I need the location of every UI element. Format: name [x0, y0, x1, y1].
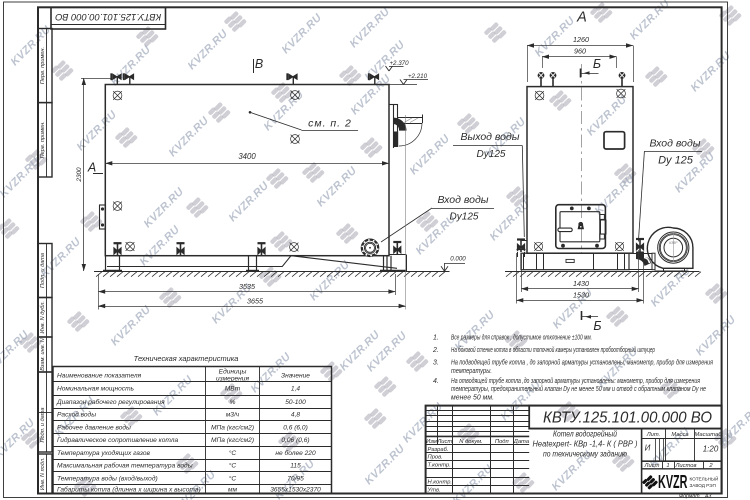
svg-text:МВт: МВт	[225, 386, 241, 393]
svg-text:4.: 4.	[433, 378, 439, 385]
svg-text:Максимальная рабочая температу: Максимальная рабочая температура воды	[57, 462, 193, 470]
svg-text:м3/ч: м3/ч	[226, 412, 240, 419]
svg-text:Лист: Лист	[644, 463, 660, 469]
svg-text:N докум.: N докум.	[459, 439, 482, 445]
svg-text:А: А	[87, 161, 96, 175]
svg-text:Б: Б	[593, 319, 601, 333]
svg-text:МПа (кгс/см2): МПа (кгс/см2)	[211, 437, 254, 444]
svg-text:960: 960	[574, 47, 586, 56]
svg-text:Пров.: Пров.	[428, 455, 443, 461]
svg-text:Утв.: Утв.	[427, 487, 441, 493]
svg-text:Т.контр.: Т.контр.	[428, 463, 451, 469]
svg-text:3.: 3.	[433, 359, 439, 366]
svg-text:1530: 1530	[573, 291, 589, 300]
svg-text:мм: мм	[228, 486, 238, 493]
svg-text:+2.370: +2.370	[389, 60, 409, 67]
svg-text:А3: А3	[704, 493, 711, 499]
svg-text:3400: 3400	[238, 152, 256, 161]
svg-text:Гидравлическое сопротивление к: Гидравлическое сопротивление котла	[57, 436, 178, 444]
svg-text:Все размеры для справок , допу: Все размеры для справок , допустимое отк…	[451, 334, 592, 342]
svg-text:Разраб.: Разраб.	[428, 447, 449, 453]
svg-text:2300: 2300	[76, 167, 83, 183]
svg-text:Лист: Лист	[436, 439, 452, 445]
svg-text:Рабочее давление воды: Рабочее давление воды	[57, 423, 131, 431]
svg-text:Единицы: Единицы	[219, 368, 247, 376]
svg-text:не более 220: не более 220	[275, 449, 316, 457]
svg-text:Вход воды: Вход воды	[650, 138, 701, 150]
svg-text:Выход воды: Выход воды	[460, 131, 519, 143]
svg-text:2.: 2.	[432, 347, 439, 354]
svg-text:Температура уходящих газов: Температура уходящих газов	[57, 449, 150, 457]
svg-text:KVZR: KVZR	[658, 472, 688, 492]
svg-text:Dy 125: Dy 125	[658, 155, 694, 167]
svg-text:50-100: 50-100	[285, 399, 306, 406]
svg-text:КВТУ.125.101.00.000 ВО: КВТУ.125.101.00.000 ВО	[543, 410, 712, 427]
svg-text:Масса: Масса	[671, 432, 689, 438]
svg-text:Формат: Формат	[679, 493, 700, 499]
svg-text:см. п. 2: см. п. 2	[308, 118, 352, 130]
svg-text:Листов: Листов	[674, 463, 696, 469]
svg-text:КЗВР: КЗВР	[669, 241, 678, 245]
svg-text:КОТЕЛЬНЫЙ: КОТЕЛЬНЫЙ	[690, 475, 719, 482]
svg-text:температуры, предохранительный: температуры, предохранительный клапан Dу…	[451, 385, 706, 393]
svg-text:Номинальная мощность: Номинальная мощность	[57, 386, 135, 393]
svg-text:Подп: Подп	[495, 439, 510, 445]
svg-text:Габариты котла (длинна х ширин: Габариты котла (длинна х ширина х высота…	[57, 485, 201, 493]
svg-text:4,8: 4,8	[291, 412, 300, 419]
svg-text:КВТУ.125.101.00.000 ВО: КВТУ.125.101.00.000 ВО	[55, 12, 161, 22]
svg-text:И: И	[645, 444, 651, 453]
svg-text:А: А	[576, 10, 587, 26]
svg-text:3655х1530х2370: 3655х1530х2370	[270, 486, 321, 493]
svg-text:3535: 3535	[239, 282, 256, 291]
svg-text:1430: 1430	[573, 279, 589, 288]
svg-text:1260: 1260	[573, 35, 589, 44]
svg-text:°С: °С	[229, 462, 237, 470]
svg-text:На подводящей трубе котла ,: На подводящей трубе котла , до запорной …	[451, 358, 713, 366]
svg-text:Наименование показателя: Наименование показателя	[57, 373, 142, 380]
svg-text:Котел водогрейный: Котел водогрейный	[553, 430, 618, 439]
svg-text:менее 50 мм.: менее 50 мм.	[451, 394, 494, 401]
svg-text:Heatexpert- КВр -1,4- К ( РВР: Heatexpert- КВр -1,4- К ( РВР )	[533, 440, 638, 449]
svg-text:0,6 (6,0): 0,6 (6,0)	[283, 424, 308, 431]
svg-text:0.000: 0.000	[450, 255, 466, 262]
svg-text:Перв. примен.: Перв. примен.	[40, 121, 46, 158]
svg-text:Дата: Дата	[513, 439, 530, 445]
svg-text:измерения: измерения	[216, 376, 249, 383]
svg-text:1.: 1.	[433, 335, 439, 342]
svg-text:Температура воды (вход/выход): Температура воды (вход/выход)	[57, 474, 158, 482]
svg-text:Изм: Изм	[426, 439, 437, 445]
svg-text:На боковой стенке котла в обла: На боковой стенке котла в области топочн…	[451, 346, 655, 354]
svg-text:70/95: 70/95	[287, 475, 304, 482]
svg-text:Лит.: Лит.	[646, 432, 661, 438]
svg-text:1: 1	[666, 463, 669, 469]
svg-text:Значение: Значение	[281, 373, 310, 380]
svg-text:Взам. инв. N: Взам. инв. N	[40, 337, 46, 371]
svg-text:1,4: 1,4	[291, 386, 300, 393]
svg-text:Перв. примен.: Перв. примен.	[40, 47, 46, 84]
svg-text:Подп. и дата: Подп. и дата	[40, 253, 46, 288]
svg-text:Н.контр.: Н.контр.	[428, 480, 453, 486]
svg-text:Инв. N подл.: Инв. N подл.	[40, 457, 46, 490]
svg-text:°С: °С	[229, 474, 237, 482]
svg-text:Dy125: Dy125	[450, 212, 479, 223]
svg-text:0,06 (0,6): 0,06 (0,6)	[281, 437, 309, 444]
svg-text:Б: Б	[593, 57, 601, 71]
svg-text:ЗАВОД РЭП: ЗАВОД РЭП	[690, 483, 716, 488]
svg-text:Масштаб: Масштаб	[694, 432, 722, 438]
svg-text:3655: 3655	[247, 296, 264, 305]
svg-text:1:20: 1:20	[703, 445, 719, 454]
svg-text:115: 115	[290, 463, 301, 470]
svg-text:Диапазон рабочего регулировани: Диапазон рабочего регулирования	[56, 398, 165, 406]
svg-text:температуры.: температуры.	[451, 368, 492, 375]
svg-text:Расход воды: Расход воды	[57, 411, 96, 419]
svg-text:%: %	[230, 399, 236, 406]
svg-text:Вход воды: Вход воды	[438, 194, 489, 206]
svg-text:°С: °С	[229, 449, 237, 457]
svg-text:по техническому заданию: по техническому заданию	[543, 450, 627, 459]
svg-text:На отводящей трубе котла ,до з: На отводящей трубе котла ,до запорной ар…	[451, 377, 700, 385]
svg-text:Dy125: Dy125	[477, 149, 506, 160]
svg-text:+2.210: +2.210	[408, 73, 428, 80]
svg-text:Техническая характеристика: Техническая характеристика	[134, 354, 239, 363]
svg-text:МПа (кгс/см2): МПа (кгс/см2)	[211, 424, 254, 431]
svg-text:В: В	[255, 57, 263, 71]
svg-text:Инв. N дубл.: Инв. N дубл.	[40, 301, 46, 333]
